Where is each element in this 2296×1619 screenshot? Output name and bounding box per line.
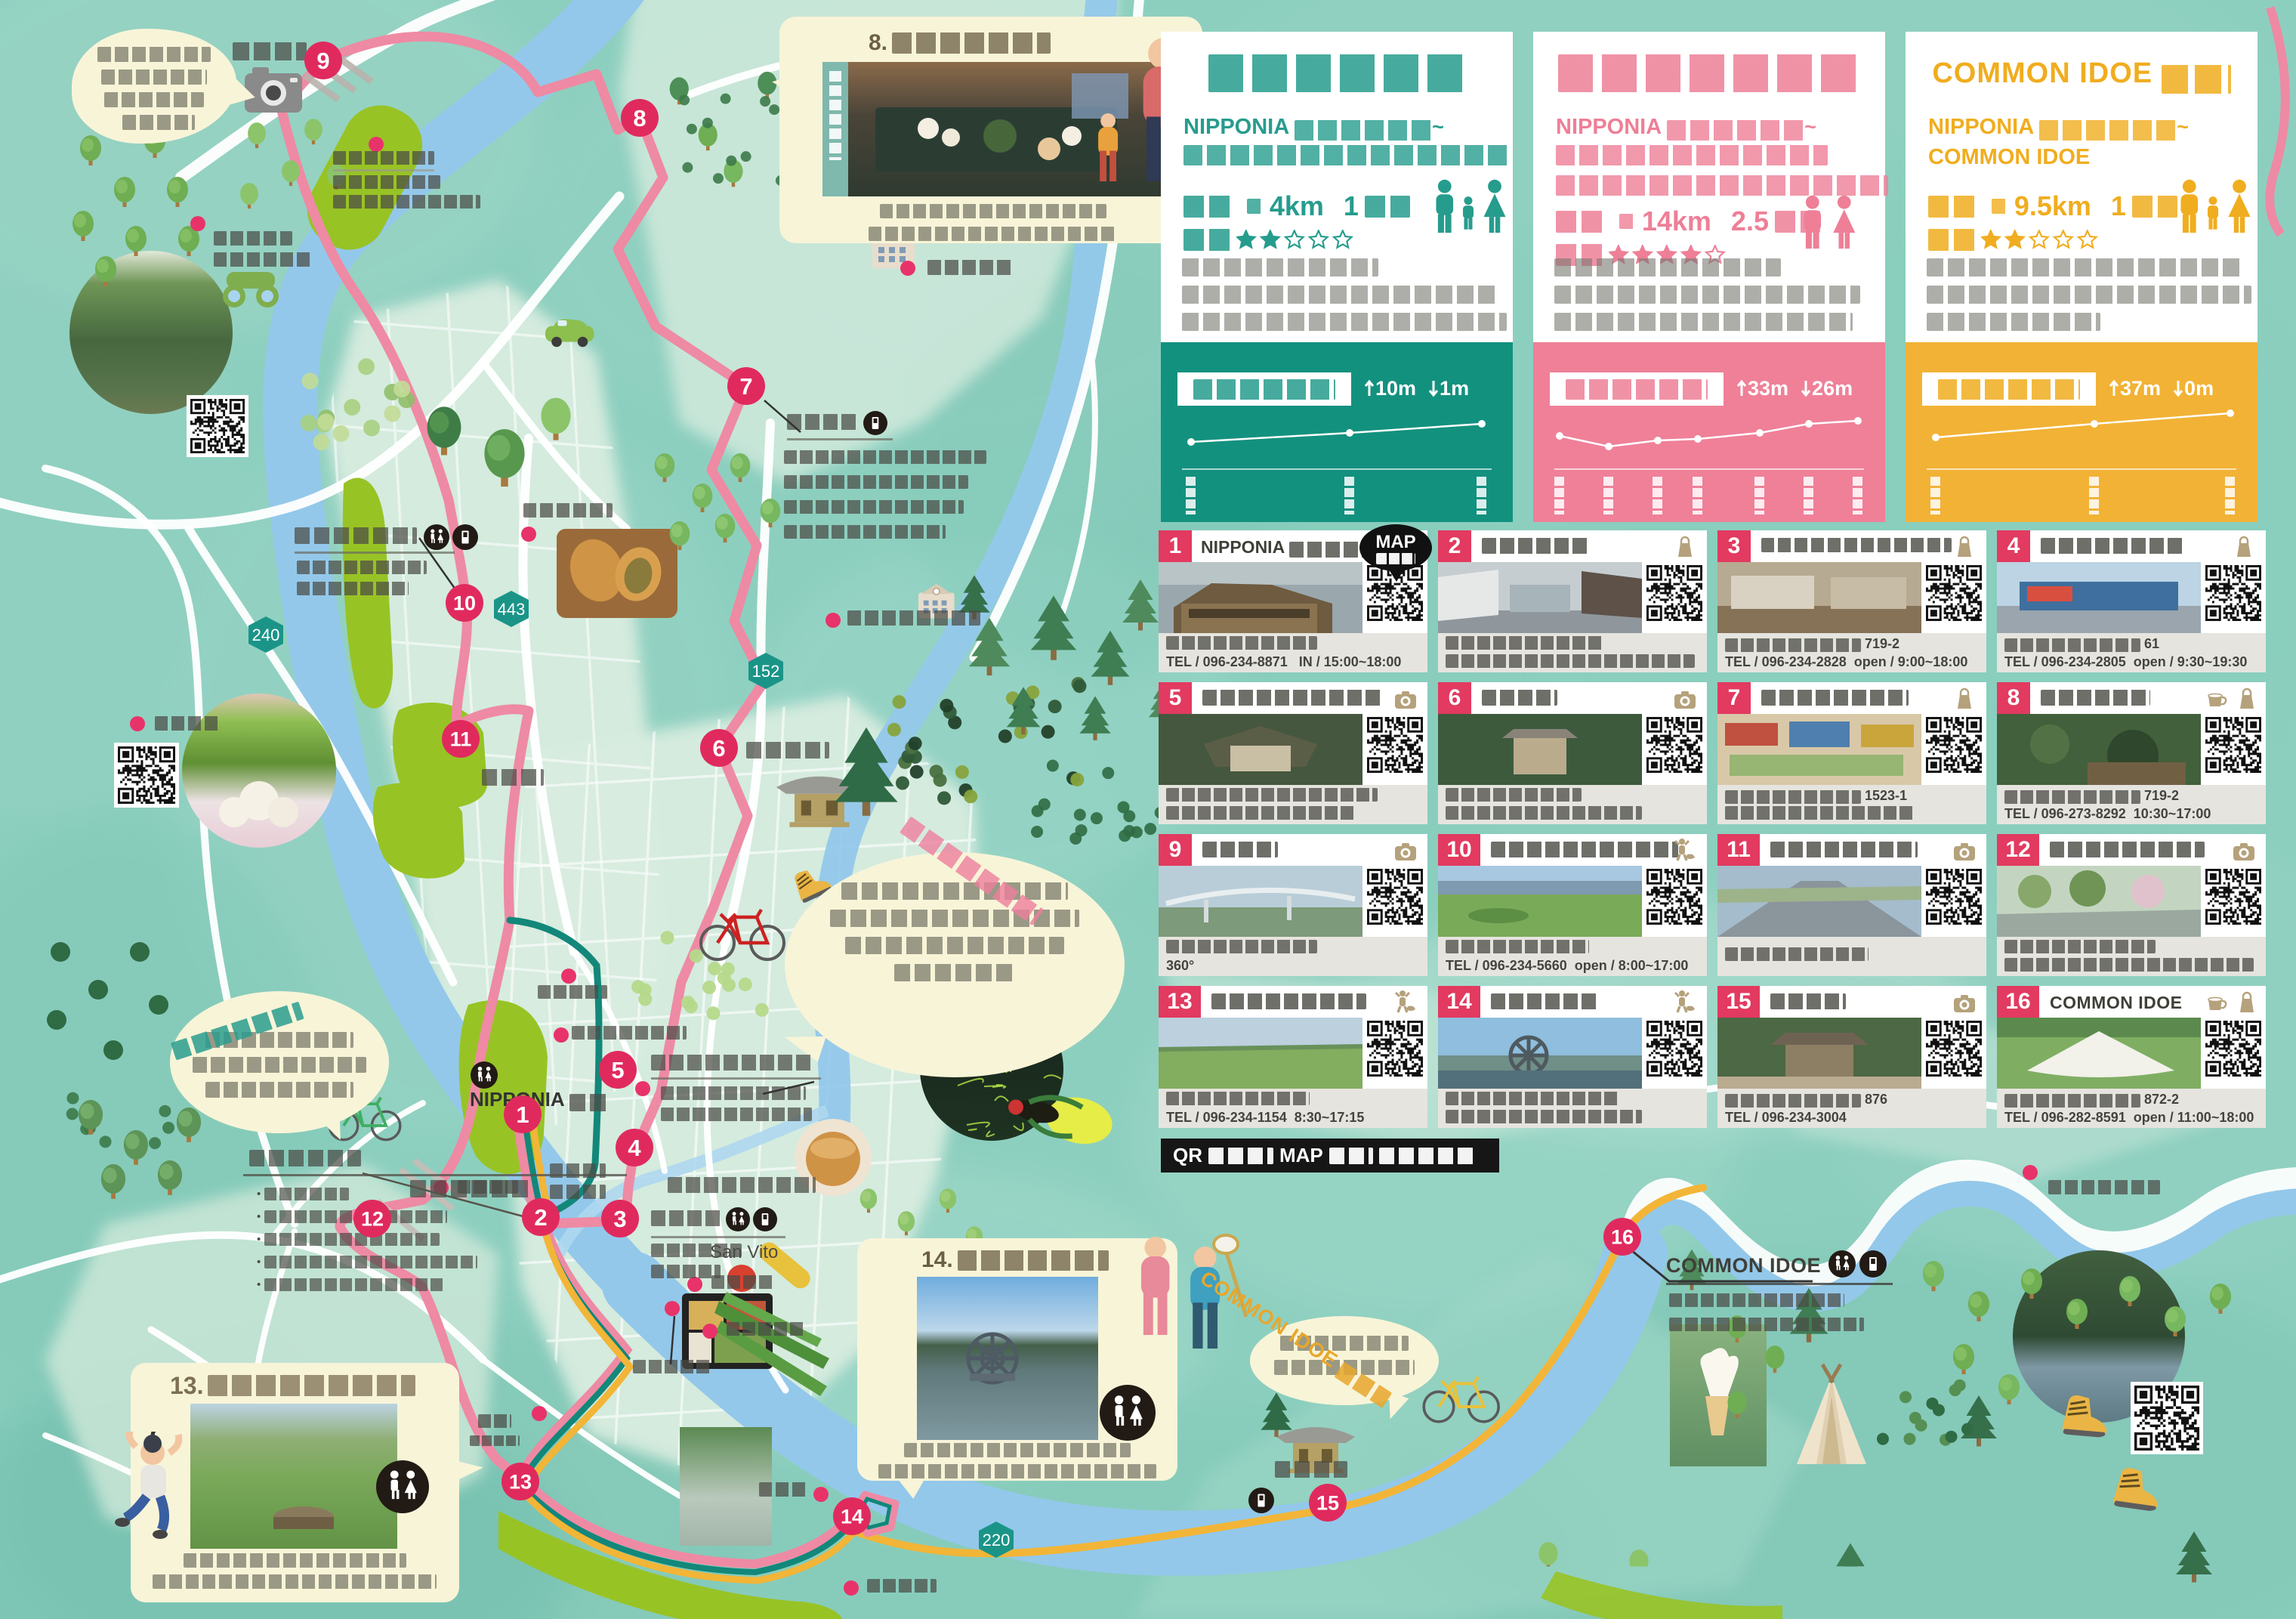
- svg-text:7: 7: [739, 373, 752, 400]
- svg-text:10: 10: [453, 592, 476, 615]
- svg-text:4: 4: [628, 1135, 641, 1161]
- svg-text:14: 14: [841, 1506, 863, 1528]
- svg-text:11: 11: [450, 728, 472, 751]
- svg-text:15: 15: [1316, 1492, 1339, 1515]
- svg-text:13: 13: [509, 1471, 532, 1494]
- svg-text:5: 5: [611, 1057, 624, 1083]
- svg-text:8: 8: [633, 105, 646, 131]
- svg-text:12: 12: [361, 1208, 384, 1231]
- svg-text:16: 16: [1611, 1226, 1634, 1249]
- svg-text:3: 3: [613, 1206, 626, 1232]
- svg-text:2: 2: [534, 1204, 547, 1231]
- svg-text:1: 1: [516, 1101, 529, 1128]
- svg-text:6: 6: [712, 735, 725, 762]
- svg-text:9: 9: [316, 48, 329, 74]
